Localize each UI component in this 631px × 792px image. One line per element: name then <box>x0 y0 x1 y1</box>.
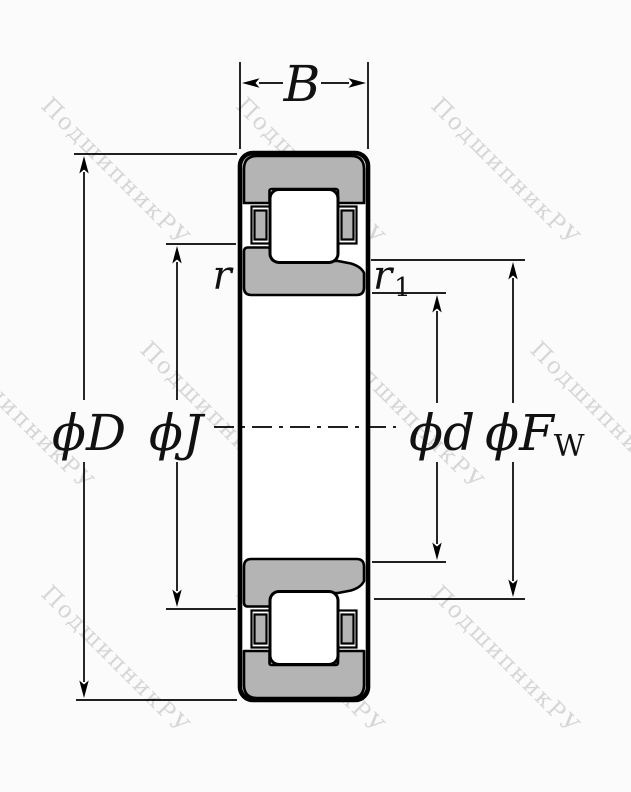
dim-label-outer-diameter: ϕD <box>52 404 126 462</box>
dim-label-rib-diameter: ϕJ <box>149 404 206 462</box>
watermark-text: ПодшипникРУ <box>426 581 585 740</box>
bearing-drawing-svg: ПодшипникРУ ПодшипникРУ ПодшипникРУ Подш… <box>0 0 631 792</box>
cage-bar-top-left <box>255 211 267 240</box>
roller-bottom <box>270 592 338 665</box>
arrowhead-right <box>349 78 367 87</box>
bearing-diagram: ПодшипникРУ ПодшипникРУ ПодшипникРУ Подш… <box>0 0 631 792</box>
dim-label-chamfer-r: r <box>212 253 234 299</box>
arrowhead-down <box>432 543 441 561</box>
cage-bar-bottom-left <box>255 615 267 644</box>
dim-label-width-B: B <box>283 55 321 113</box>
arrowhead-down <box>508 580 517 598</box>
dim-label-bore-diameter: ϕd <box>409 404 475 462</box>
arrowhead-up <box>432 295 441 313</box>
roller-top <box>270 190 338 263</box>
arrowhead-left <box>242 78 260 87</box>
dim-label-raceway-diameter: ϕFW <box>485 404 585 464</box>
cage-bar-bottom-right <box>342 615 354 644</box>
arrowhead-up <box>508 262 517 280</box>
cage-bar-top-right <box>342 211 354 240</box>
watermark-text: ПодшипникРУ <box>36 93 195 252</box>
watermark-text: ПодшипникРУ <box>36 581 195 740</box>
arrowhead-down <box>79 681 88 699</box>
watermark-text: ПодшипникРУ <box>426 93 585 252</box>
arrowhead-down <box>172 590 181 608</box>
